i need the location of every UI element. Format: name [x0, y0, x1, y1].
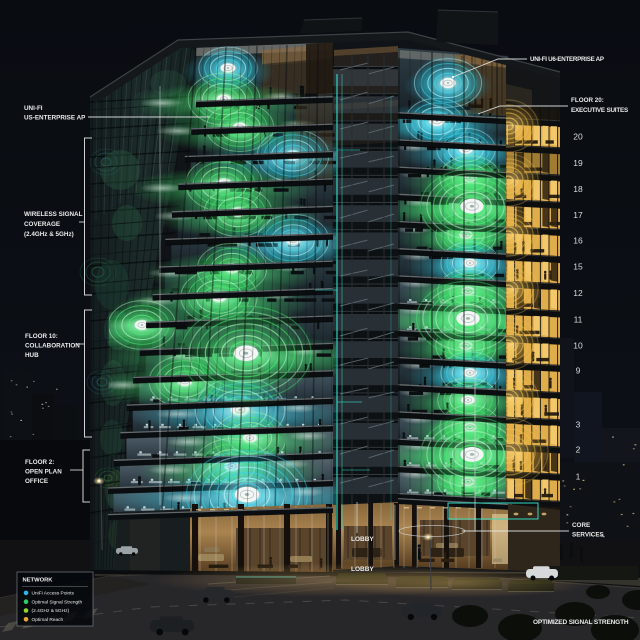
svg-text:16: 16 — [573, 236, 583, 246]
svg-text:LOBBY: LOBBY — [351, 566, 374, 573]
svg-text:UniFi Access Points: UniFi Access Points — [32, 591, 75, 597]
svg-text:FLOOR 10:: FLOOR 10: — [25, 333, 58, 340]
svg-text:OPTIMIZED SIGNAL STRENGTH: OPTIMIZED SIGNAL STRENGTH — [533, 619, 629, 626]
svg-text:18: 18 — [573, 184, 583, 194]
svg-text:EXECUTIVE SUITES: EXECUTIVE SUITES — [571, 107, 628, 114]
svg-text:LOBBY: LOBBY — [351, 536, 374, 543]
svg-text:WIRELESS SIGNAL: WIRELESS SIGNAL — [24, 211, 83, 218]
svg-text:NETWORK: NETWORK — [23, 578, 54, 584]
svg-text:UNI-FI U6-ENTERPRISE AP: UNI-FI U6-ENTERPRISE AP — [530, 56, 604, 63]
svg-text:US-ENTERPRISE AP: US-ENTERPRISE AP — [24, 115, 85, 122]
svg-text:20: 20 — [573, 132, 583, 142]
svg-text:9: 9 — [576, 366, 581, 376]
svg-text:SERVICES: SERVICES — [572, 532, 604, 539]
svg-text:(2.4GHz & 5GHz): (2.4GHz & 5GHz) — [32, 608, 70, 614]
svg-text:11: 11 — [574, 315, 583, 325]
svg-text:FLOOR 20:: FLOOR 20: — [571, 97, 604, 104]
svg-text:10: 10 — [573, 341, 583, 351]
svg-text:1: 1 — [576, 472, 581, 482]
svg-text:UNI-FI: UNI-FI — [24, 105, 43, 112]
svg-text:COLLABORATION: COLLABORATION — [25, 343, 80, 350]
svg-text:CORE: CORE — [572, 522, 590, 529]
svg-text:17: 17 — [573, 210, 583, 220]
svg-text:Optimal Signal Strength: Optimal Signal Strength — [32, 599, 83, 605]
svg-text:19: 19 — [573, 158, 583, 168]
svg-text:OPEN PLAN: OPEN PLAN — [25, 469, 62, 476]
svg-text:HUB: HUB — [25, 352, 39, 359]
svg-text:FLOOR 2:: FLOOR 2: — [25, 459, 54, 466]
svg-text:15: 15 — [573, 262, 583, 272]
svg-text:2: 2 — [576, 445, 581, 455]
svg-text:Optimal Reach: Optimal Reach — [32, 617, 64, 623]
svg-text:COVERAGE: COVERAGE — [24, 221, 60, 228]
svg-text:(2.4GHz & 5GHz): (2.4GHz & 5GHz) — [24, 231, 74, 238]
svg-text:OFFICE: OFFICE — [25, 478, 48, 485]
svg-text:12: 12 — [573, 288, 583, 298]
svg-text:3: 3 — [576, 420, 581, 430]
